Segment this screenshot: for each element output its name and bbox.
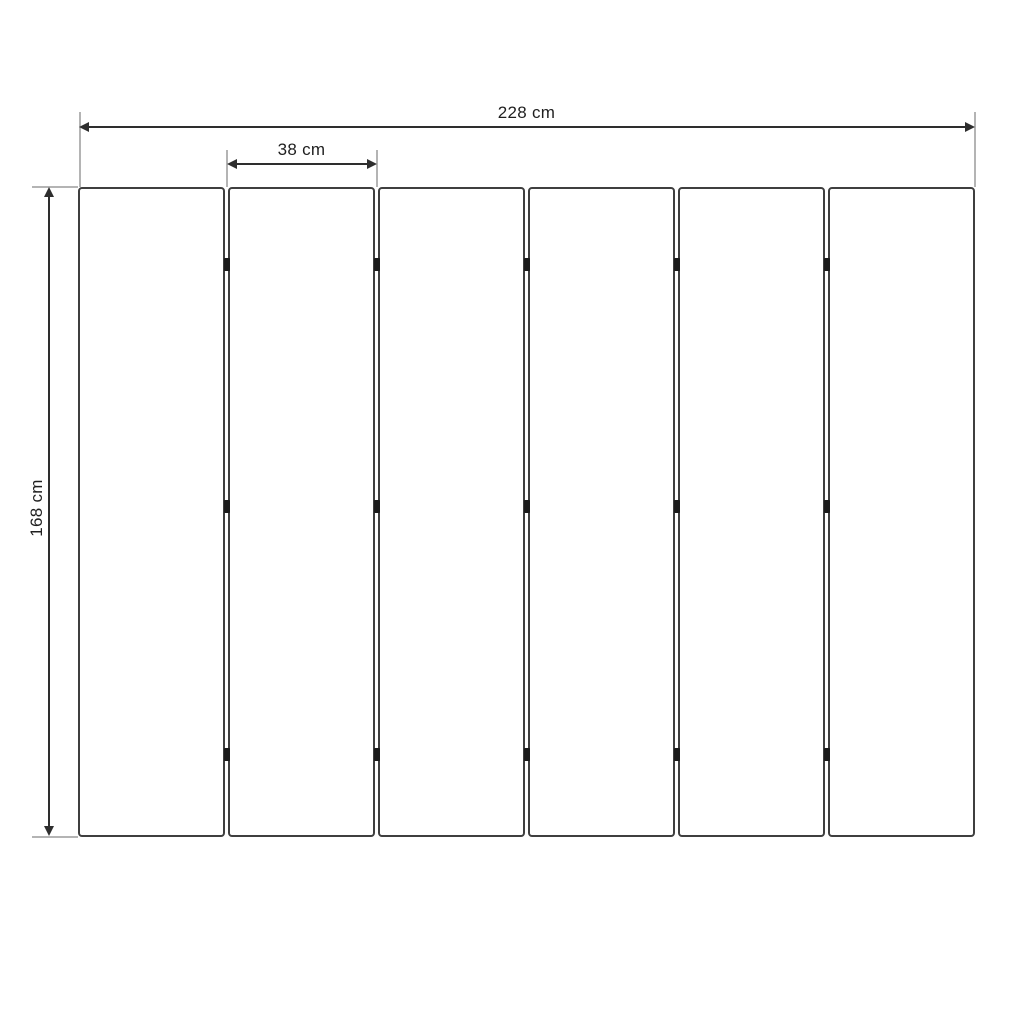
hinge-mark: [524, 258, 530, 271]
hinge-mark: [524, 500, 530, 513]
panel-3: [378, 187, 525, 837]
panel-4: [528, 187, 675, 837]
extension-line-height-bottom: [32, 836, 78, 838]
panel-6: [828, 187, 975, 837]
panel-width-label: 38 cm: [226, 139, 377, 161]
hinge-mark: [524, 748, 530, 761]
extension-line-height-top: [32, 186, 78, 188]
total-width-dimension-line: [87, 126, 967, 128]
panel-5: [678, 187, 825, 837]
arrowhead-up-icon: [44, 187, 54, 197]
hinge-mark: [824, 748, 830, 761]
hinge-mark: [674, 500, 680, 513]
hinge-mark: [224, 258, 230, 271]
arrowhead-down-icon: [44, 826, 54, 836]
height-label: 168 cm: [26, 479, 48, 537]
panel-width-dimension-line: [235, 163, 369, 165]
hinge-mark: [674, 748, 680, 761]
hinge-mark: [824, 500, 830, 513]
hinge-mark: [224, 748, 230, 761]
diagram-canvas: 228 cm 38 cm 168 cm: [0, 0, 1024, 1024]
arrowhead-left-icon: [227, 159, 237, 169]
hinge-mark: [374, 258, 380, 271]
hinge-mark: [374, 500, 380, 513]
panel-2: [228, 187, 375, 837]
hinge-mark: [824, 258, 830, 271]
hinge-mark: [374, 748, 380, 761]
arrowhead-right-icon: [367, 159, 377, 169]
height-dimension-line: [48, 195, 50, 827]
arrowhead-left-icon: [79, 122, 89, 132]
arrowhead-right-icon: [965, 122, 975, 132]
hinge-mark: [674, 258, 680, 271]
panel-1: [78, 187, 225, 837]
hinge-mark: [224, 500, 230, 513]
total-width-label: 228 cm: [78, 102, 975, 124]
panels-row: [78, 187, 975, 837]
